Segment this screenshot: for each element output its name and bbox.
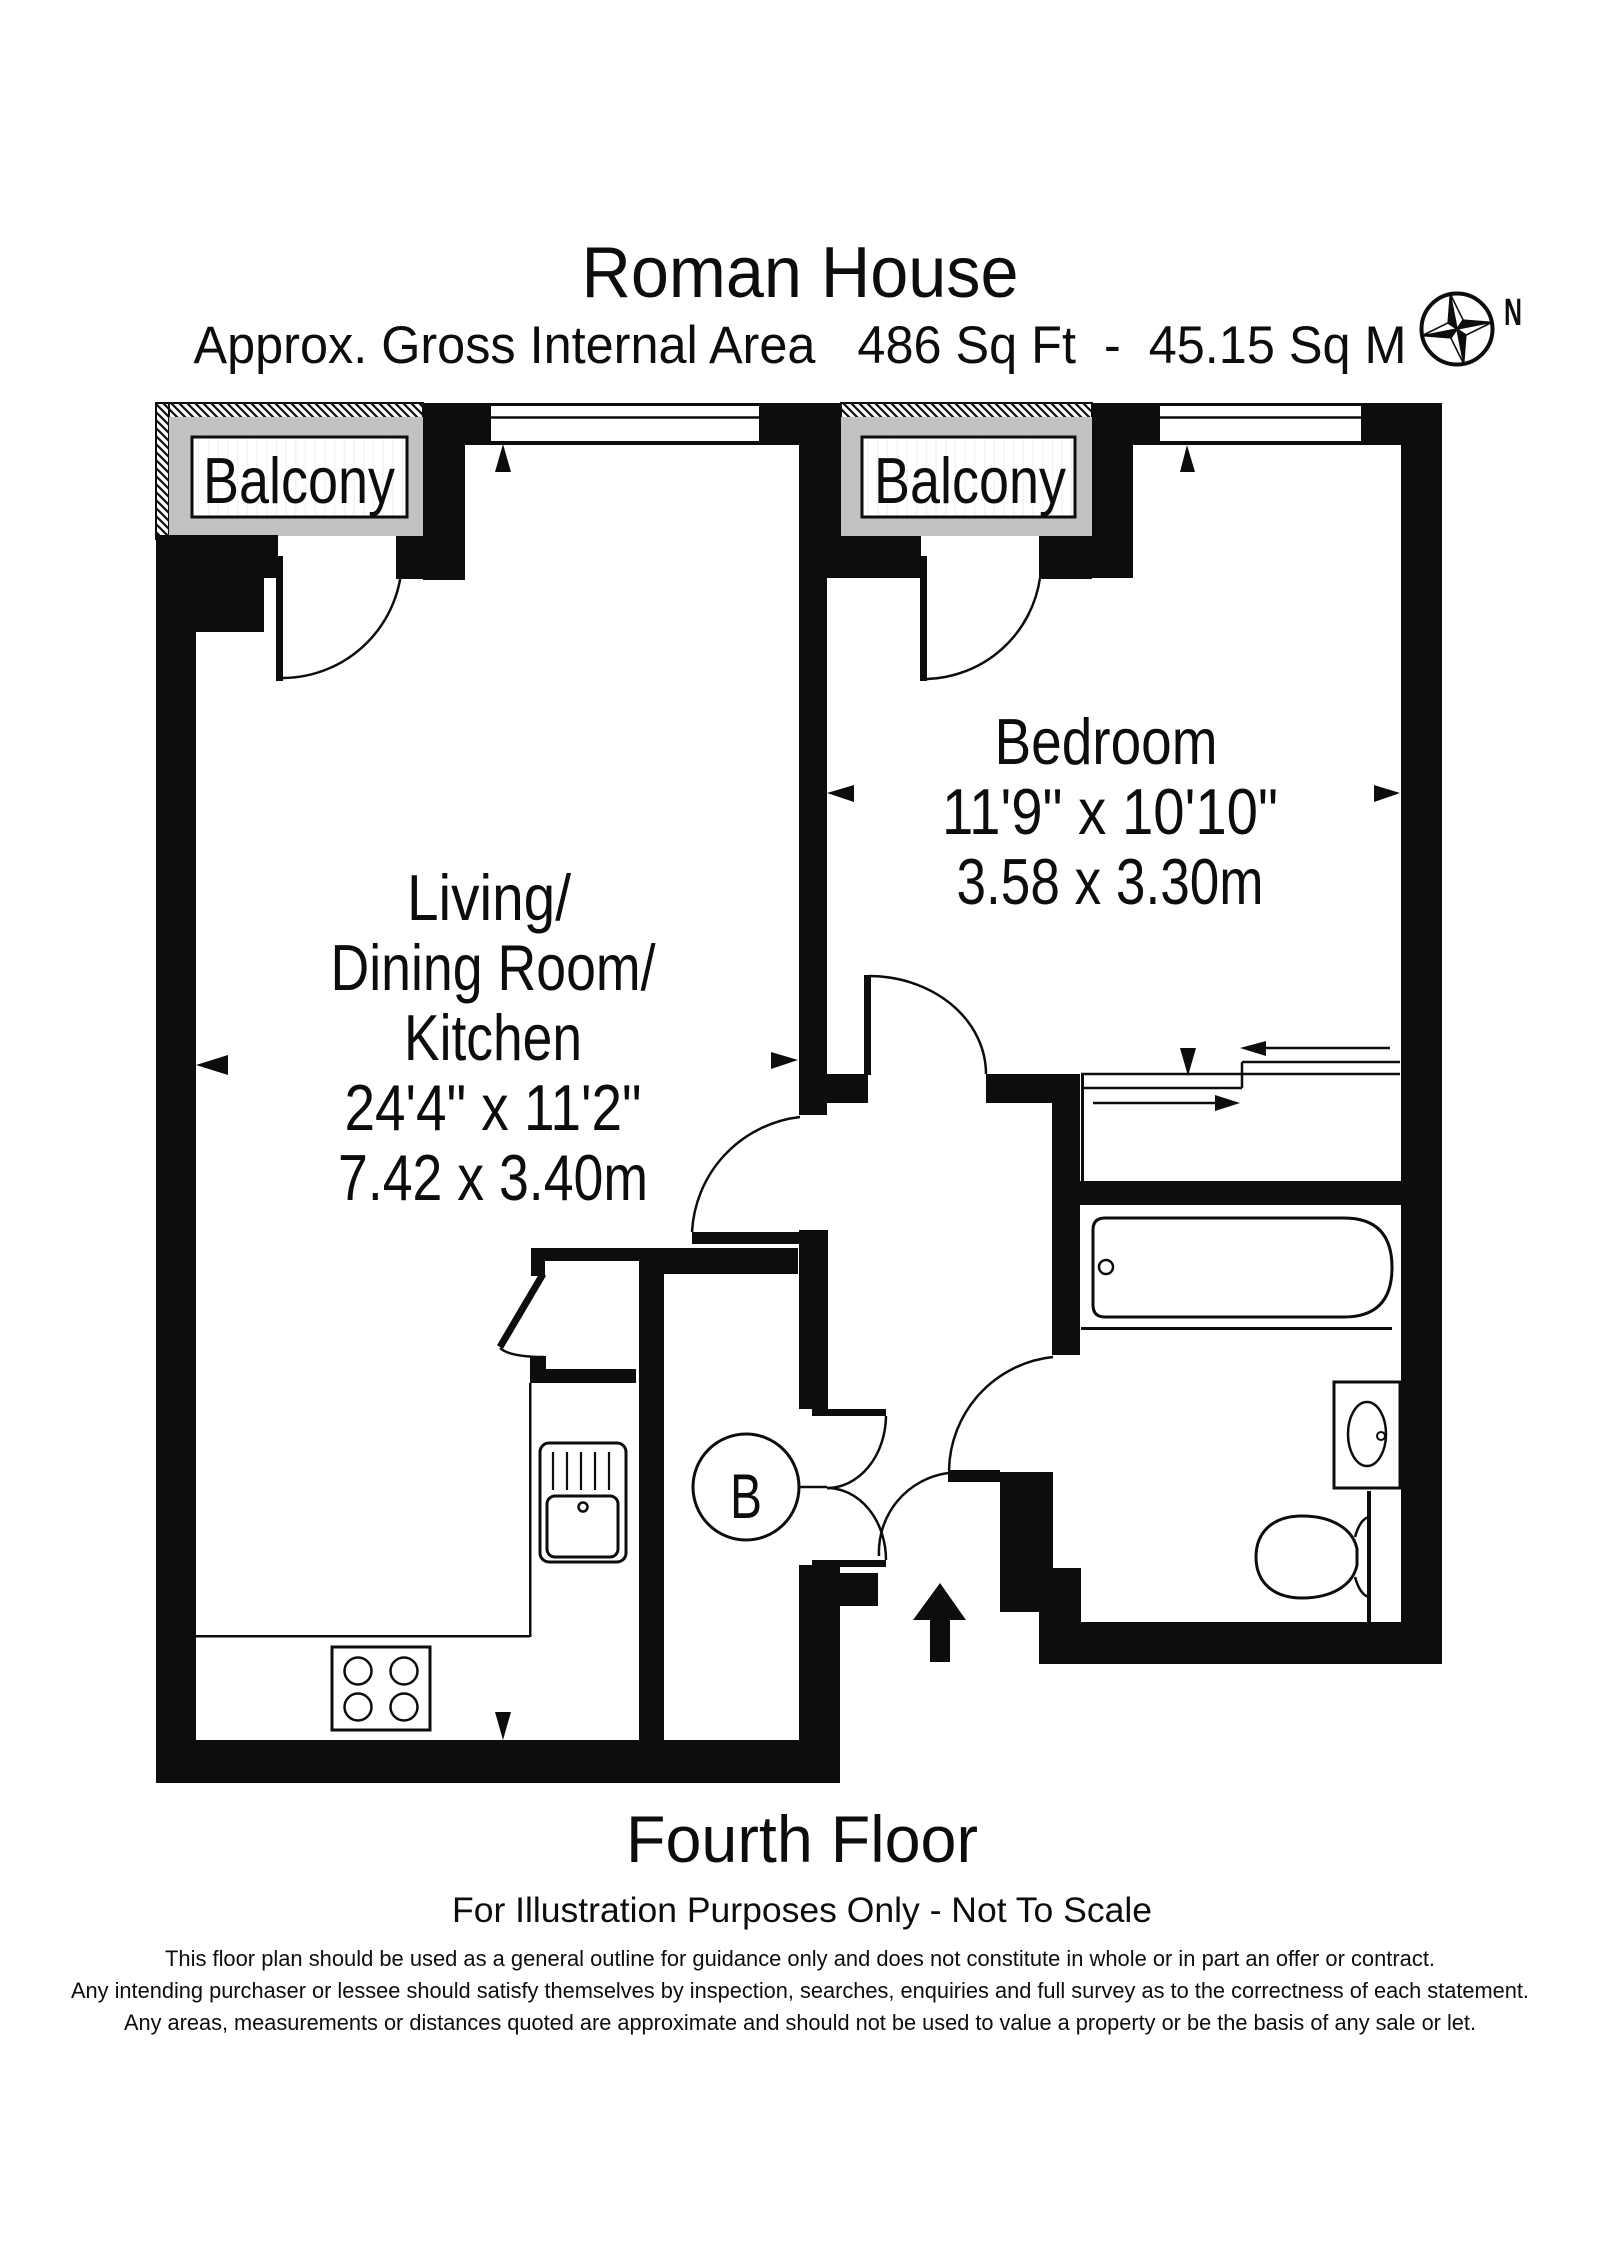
svg-text:N: N — [1504, 292, 1522, 334]
svg-text:B: B — [730, 1462, 762, 1532]
svg-text:Fourth Floor: Fourth Floor — [626, 1802, 978, 1876]
svg-text:24'4" x 11'2": 24'4" x 11'2" — [345, 1071, 642, 1144]
svg-text:Any intending purchaser or les: Any intending purchaser or lessee should… — [71, 1978, 1529, 2003]
svg-text:7.42 x 3.40m: 7.42 x 3.40m — [338, 1141, 648, 1214]
svg-text:Roman House: Roman House — [582, 233, 1019, 313]
svg-text:Bedroom: Bedroom — [995, 705, 1218, 778]
svg-text:Kitchen: Kitchen — [404, 1001, 582, 1074]
svg-text:Balcony: Balcony — [874, 444, 1066, 517]
svg-text:11'9" x 10'10": 11'9" x 10'10" — [942, 775, 1278, 848]
svg-text:This floor plan should be used: This floor plan should be used as a gene… — [165, 1946, 1435, 1971]
svg-text:Any areas, measurements or dis: Any areas, measurements or distances quo… — [124, 2010, 1476, 2035]
svg-text:Dining Room/: Dining Room/ — [331, 931, 657, 1004]
svg-text:For Illustration Purposes Only: For Illustration Purposes Only - Not To … — [452, 1891, 1152, 1930]
svg-text:3.58 x 3.30m: 3.58 x 3.30m — [957, 845, 1264, 918]
svg-text:Living/: Living/ — [407, 861, 572, 934]
svg-text:Approx. Gross Internal Area: Approx. Gross Internal Area 486 Sq Ft - … — [194, 316, 1407, 375]
svg-text:Balcony: Balcony — [203, 444, 395, 517]
